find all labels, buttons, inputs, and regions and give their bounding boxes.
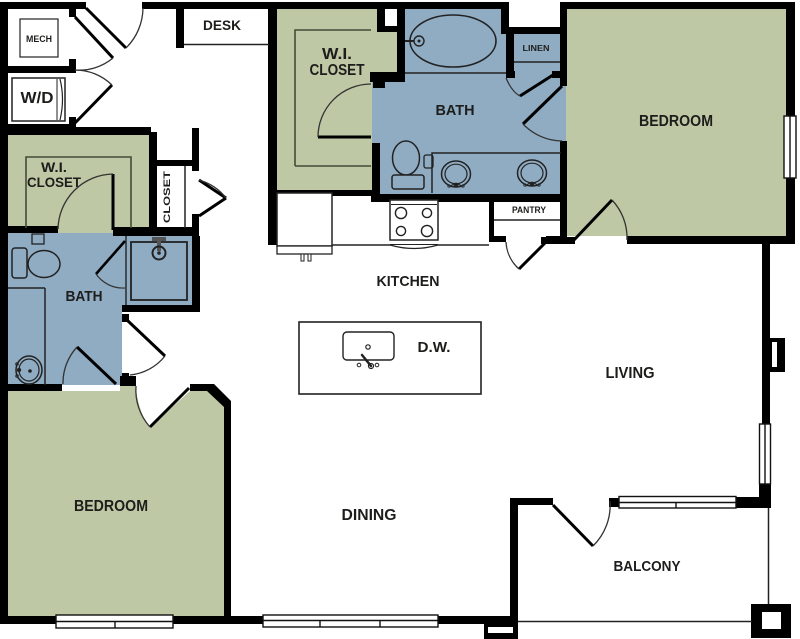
svg-text:BATH: BATH <box>66 289 103 305</box>
svg-text:PANTRY: PANTRY <box>512 205 546 215</box>
svg-text:LIVING: LIVING <box>606 365 655 382</box>
svg-text:D.W.: D.W. <box>418 339 451 356</box>
svg-text:LINEN: LINEN <box>523 43 550 53</box>
svg-text:BALCONY: BALCONY <box>614 559 681 575</box>
svg-text:CLOSET: CLOSET <box>162 170 172 223</box>
svg-text:MECH: MECH <box>26 34 52 44</box>
svg-text:CLOSET: CLOSET <box>310 62 365 79</box>
svg-text:CLOSET: CLOSET <box>27 174 81 190</box>
svg-text:KITCHEN: KITCHEN <box>377 273 440 290</box>
svg-text:W.I.: W.I. <box>322 46 352 63</box>
svg-text:DINING: DINING <box>342 507 397 524</box>
svg-text:BEDROOM: BEDROOM <box>74 498 148 515</box>
svg-text:W/D: W/D <box>21 90 54 107</box>
svg-text:BATH: BATH <box>436 103 475 119</box>
svg-text:W.I.: W.I. <box>41 159 67 175</box>
svg-text:BEDROOM: BEDROOM <box>639 113 713 130</box>
svg-text:DESK: DESK <box>203 18 241 33</box>
